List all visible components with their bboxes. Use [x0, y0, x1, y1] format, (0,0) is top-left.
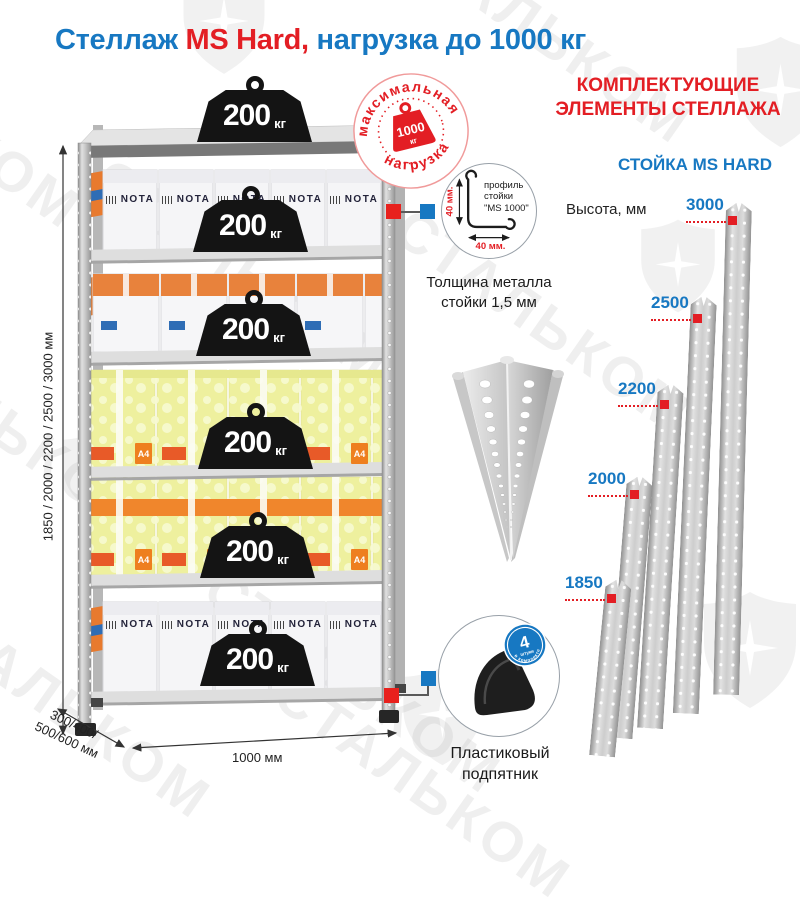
callout-square-red	[386, 204, 401, 219]
post-height-label: 2200	[618, 379, 669, 409]
post-height-label: 1850	[565, 573, 616, 603]
callout-square-blue	[421, 671, 436, 686]
title-part-red: MS Hard,	[185, 24, 308, 56]
callout-line	[399, 211, 421, 213]
post-height-label: 2000	[588, 469, 639, 499]
a4-sticker: A4	[135, 549, 152, 570]
barcode-icon	[218, 621, 230, 629]
included-count-badge: 4 штуки в комплекте	[502, 622, 548, 668]
box-brand-label: NOTA	[270, 618, 326, 631]
a4-sticker: A4	[351, 443, 368, 464]
box-brand-label: NOTA	[326, 193, 382, 206]
shelf-load-badge: 200кг	[198, 415, 313, 469]
barcode-icon	[106, 196, 118, 204]
title-part-blue: Стеллаж	[55, 24, 185, 56]
dotted-leader	[686, 221, 726, 223]
barcode-icon	[106, 621, 118, 629]
components-subheader: СТОЙКА MS HARD	[595, 155, 795, 175]
red-marker	[693, 314, 702, 323]
max-load-stamp: максимальная нагрузка 1000 кг	[350, 70, 472, 192]
foot-caption: Пластиковый подпятник	[425, 744, 575, 786]
profile-caption: Толщина металла стойки 1,5 мм	[414, 273, 564, 312]
dotted-leader	[588, 495, 628, 497]
callout-square-red	[384, 688, 399, 703]
height-dimension-label: 1850 / 2000 / 2200 / 2500 / 3000 мм	[41, 287, 56, 587]
product-infographic: { "title": {"part1": "Стеллаж ", "part2"…	[0, 0, 800, 800]
red-marker	[728, 216, 737, 225]
a4-sticker: A4	[351, 549, 368, 570]
a4-sticker: A4	[135, 443, 152, 464]
red-marker	[630, 490, 639, 499]
shelf-load-badge: 200кг	[193, 198, 308, 252]
profile-dim-horizontal: 40 мм.	[468, 241, 513, 252]
height-column-label: Высота, мм	[566, 201, 646, 218]
barcode-icon	[162, 196, 174, 204]
shelf-load-badge: 200кг	[197, 88, 312, 142]
components-header: КОМПЛЕКТУЮЩИЕ ЭЛЕМЕНТЫ СТЕЛЛАЖА	[543, 74, 793, 122]
dotted-leader	[618, 405, 658, 407]
post-height-label: 3000	[686, 195, 737, 225]
profile-label: профиль стойки "MS 1000"	[484, 180, 532, 214]
barcode-icon	[162, 621, 174, 629]
callout-square-blue	[420, 204, 435, 219]
dotted-leader	[651, 319, 691, 321]
width-dimension-label: 1000 мм	[232, 750, 282, 765]
title-part-blue: нагрузка до 1000 кг	[309, 24, 586, 56]
box-brand-label: NOTA	[102, 618, 158, 631]
barcode-icon	[330, 196, 342, 204]
barcode-icon	[274, 621, 286, 629]
box-brand-label: NOTA	[326, 618, 382, 631]
callout-line	[427, 686, 429, 696]
corner-post-illustration	[445, 348, 565, 568]
shelf-load-badge: 200кг	[200, 632, 315, 686]
callout-line	[399, 694, 429, 696]
shelf-load-badge: 200кг	[200, 524, 315, 578]
shelf-load-badge: 200кг	[196, 302, 311, 356]
red-marker	[660, 400, 669, 409]
dotted-leader	[565, 599, 605, 601]
page-title: Стеллаж MS Hard, нагрузка до 1000 кг	[55, 24, 586, 57]
weight-handle-icon	[400, 103, 411, 114]
box-brand-label: NOTA	[102, 193, 158, 206]
barcode-icon	[330, 621, 342, 629]
post-height-label: 2500	[651, 293, 702, 323]
red-marker	[607, 594, 616, 603]
box-brand-label: NOTA	[158, 618, 214, 631]
